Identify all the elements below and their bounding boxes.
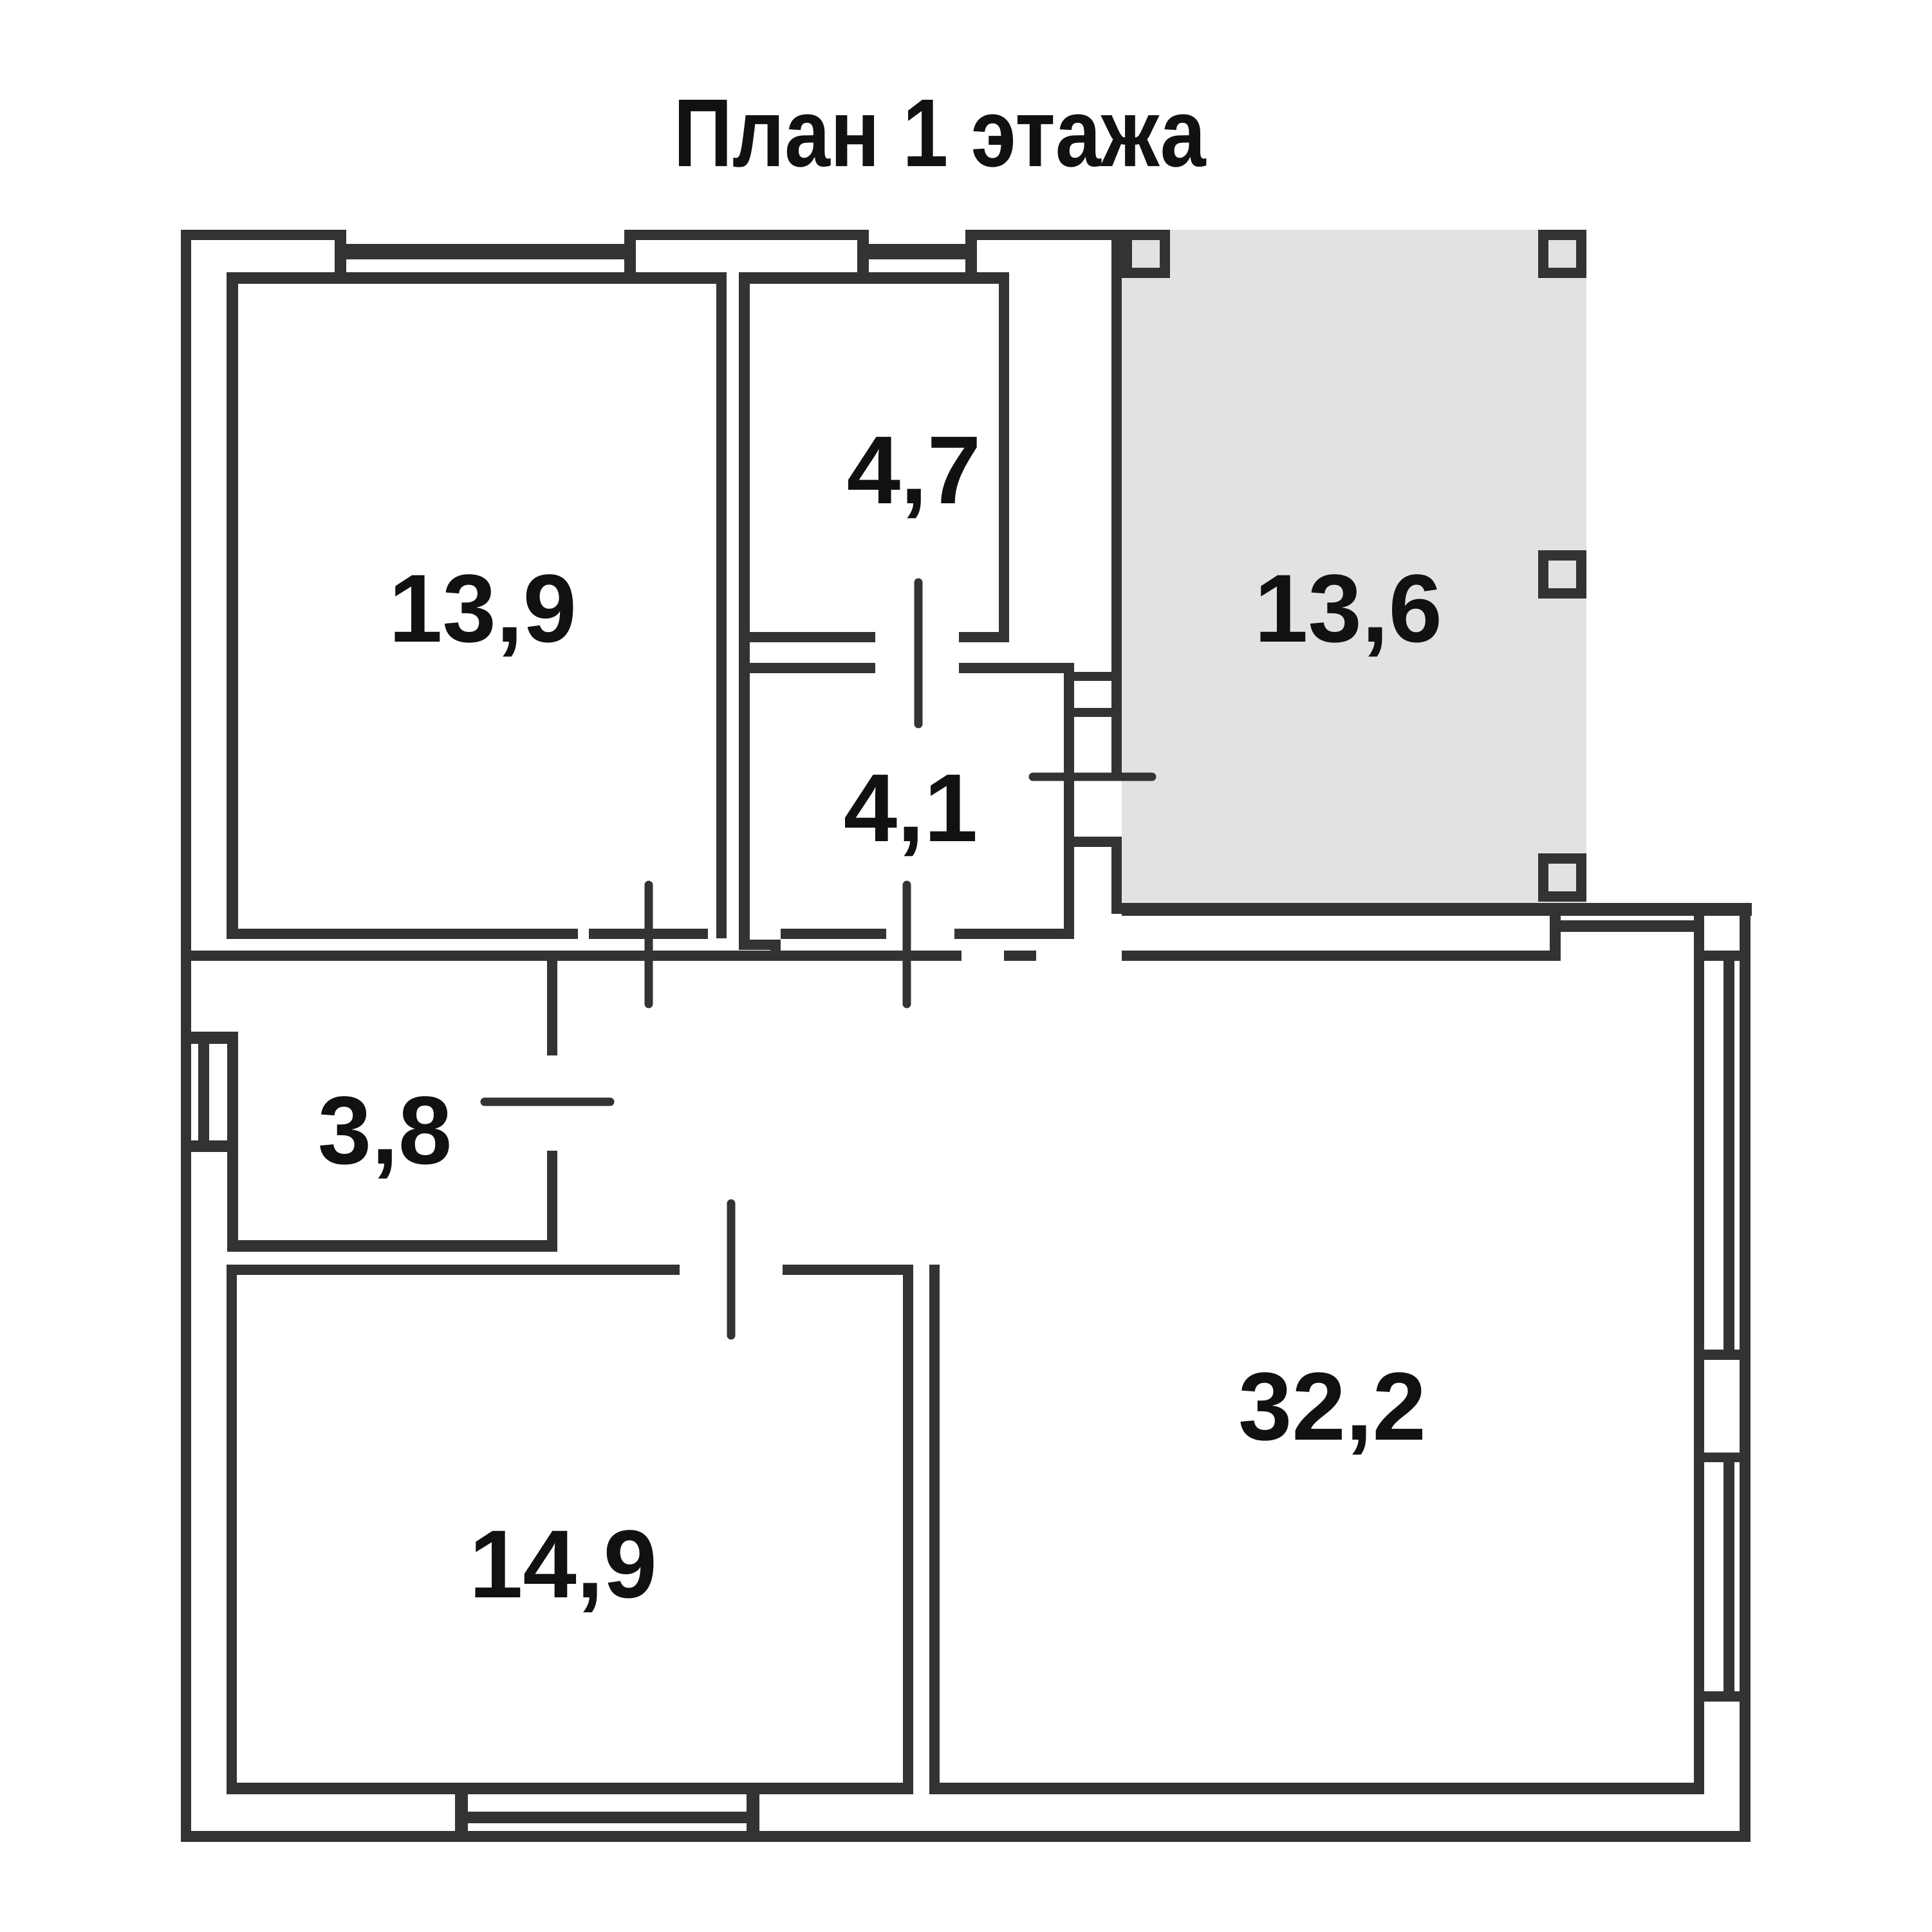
wall-room47-top bbox=[739, 272, 1009, 284]
window-sill bbox=[1704, 1691, 1751, 1702]
room-label-13-9: 13,9 bbox=[389, 554, 577, 662]
window-glass bbox=[869, 244, 965, 259]
wall-outer-right-upper bbox=[1111, 837, 1122, 914]
wall-band-lower bbox=[1004, 951, 1036, 961]
wall-terrace-bottom bbox=[1122, 903, 1752, 916]
terrace-post bbox=[1543, 555, 1581, 593]
wall-room149-right bbox=[903, 1265, 913, 1794]
room-label-13-6: 13,6 bbox=[1254, 554, 1442, 662]
window-jamb bbox=[747, 1794, 759, 1831]
wall-room322-left bbox=[929, 1265, 940, 1794]
wall-outer-top bbox=[977, 230, 1122, 240]
window-pier-bottom bbox=[1704, 1453, 1751, 1462]
wall-room41-top bbox=[959, 663, 1074, 673]
wall-terrace-bottom-inner bbox=[1122, 951, 1550, 961]
wall-room139-left bbox=[227, 272, 238, 929]
wall-outer-right-lower bbox=[1740, 961, 1751, 1842]
wall-band-upper bbox=[781, 929, 886, 939]
wall-outer-top bbox=[636, 230, 857, 240]
page-title-group: План 1 этажа bbox=[673, 79, 1207, 187]
window-glass bbox=[1561, 920, 1694, 932]
wall-room38-bottom bbox=[227, 1240, 557, 1252]
window-pier-top bbox=[1704, 1350, 1751, 1360]
floor-plan-page: План 1 этажа bbox=[0, 0, 1932, 1932]
room-label-3-8: 3,8 bbox=[318, 1076, 452, 1184]
window-glass bbox=[198, 1044, 209, 1140]
room-label-32-2: 32,2 bbox=[1238, 1352, 1426, 1460]
wall-room47-bottom bbox=[959, 632, 1009, 642]
wall-room322-bottom bbox=[929, 1783, 1704, 1794]
window-jamb bbox=[1740, 903, 1751, 961]
wall-room38-right bbox=[547, 1151, 557, 1252]
wall-room139-right bbox=[716, 272, 727, 938]
room-label-4-7: 4,7 bbox=[847, 416, 981, 524]
floor-plan-drawing: План 1 этажа bbox=[0, 0, 1932, 1932]
window-jamb bbox=[187, 1140, 227, 1152]
wall-room47-left bbox=[739, 272, 750, 950]
wall-room38-right bbox=[547, 961, 557, 1055]
window-glass bbox=[468, 1812, 747, 1823]
wall-room41-right bbox=[1064, 663, 1074, 938]
wall-room139-top bbox=[227, 272, 727, 284]
room-labels: 13,9 4,7 4,1 13,6 3,8 14,9 32,2 bbox=[318, 416, 1442, 1618]
wall-outer-top bbox=[181, 230, 346, 240]
room-label-14-9: 14,9 bbox=[469, 1510, 657, 1618]
terrace-post bbox=[1127, 235, 1165, 273]
wall-room149-bottom bbox=[227, 1783, 913, 1794]
wall-band-upper bbox=[227, 929, 578, 939]
wall-room47-bottom bbox=[739, 632, 875, 642]
wall-outer-bottom bbox=[181, 1831, 1751, 1842]
wall-room41-top bbox=[739, 663, 875, 673]
wall-outer-right-upper bbox=[1111, 230, 1122, 781]
window-glass bbox=[1723, 961, 1734, 1350]
wall-livingroom-right bbox=[1694, 961, 1704, 1794]
wall-band-upper bbox=[954, 929, 1074, 939]
window-jamb bbox=[1550, 903, 1561, 961]
room-label-4-1: 4,1 bbox=[844, 754, 978, 862]
wall-room149-top bbox=[227, 1265, 680, 1275]
wall-room149-top bbox=[783, 1265, 913, 1275]
window-glass bbox=[346, 244, 624, 259]
window-jamb bbox=[187, 1032, 227, 1044]
window-jamb bbox=[455, 1794, 468, 1831]
terrace-post bbox=[1543, 859, 1581, 896]
terrace-post bbox=[1543, 235, 1581, 273]
window-glass bbox=[1723, 1462, 1734, 1691]
wall-room149-left bbox=[227, 1265, 237, 1794]
page-title: План 1 этажа bbox=[673, 79, 1207, 187]
wall-room47-right bbox=[999, 272, 1009, 642]
wall-room38-left bbox=[227, 1032, 238, 1252]
wall-band-lower bbox=[191, 951, 961, 961]
